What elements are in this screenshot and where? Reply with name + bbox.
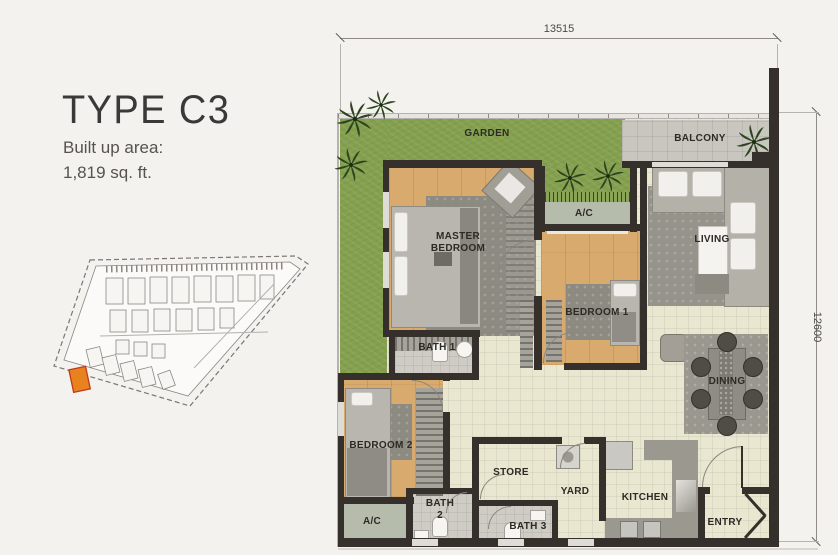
room-label-bath2: BATH 2	[422, 498, 458, 522]
room-label-balcony: BALCONY	[674, 133, 726, 145]
top-dimension-line	[340, 38, 778, 39]
master-pillow-1	[394, 212, 408, 252]
wall-bedroom2-right-stub	[443, 373, 450, 381]
wall-yard-kitchen	[599, 437, 606, 521]
built-up-area: Built up area: 1,819 sq. ft.	[63, 136, 163, 185]
wall-balcony-pier	[752, 152, 770, 166]
page-title: TYPE C3	[62, 88, 230, 133]
room-label-store: STORE	[493, 467, 529, 479]
bath3-basin	[530, 510, 546, 521]
window-bedroom2	[338, 402, 344, 436]
wall-living-left	[640, 162, 647, 370]
dim-extension	[777, 44, 778, 68]
master-throw	[460, 208, 478, 324]
sofa-cushion	[730, 238, 756, 270]
window-master-2	[383, 252, 389, 288]
wall-bedroom2-top	[338, 373, 479, 380]
window-bottom-1	[412, 539, 438, 546]
window-master-1	[383, 192, 389, 228]
room-label-garden: GARDEN	[464, 128, 509, 140]
room-label-bedroom1: BEDROOM 1	[565, 307, 628, 319]
wall-right-exterior	[769, 68, 779, 547]
wall-entry-top-a	[702, 487, 710, 494]
wall-master-top	[383, 160, 538, 168]
room-label-bath1: BATH 1	[418, 342, 455, 354]
wall-store-top	[472, 437, 562, 444]
kitchen-appliance	[676, 480, 696, 512]
kitchen-fridge	[605, 441, 633, 470]
wall-ac-right	[630, 166, 637, 232]
window-bottom-2	[498, 539, 524, 546]
wall-store-bath3	[478, 500, 558, 506]
wall-master-bottom	[383, 330, 480, 337]
palm-tree-icon	[552, 160, 588, 196]
dining-chair	[743, 389, 763, 409]
room-label-bedroom2: BEDROOM 2	[349, 440, 412, 452]
wall-bedroom2-right	[443, 412, 450, 492]
dining-chair	[691, 357, 711, 377]
floorplan-page: TYPE C3 Built up area: 1,819 sq. ft.	[0, 0, 838, 555]
dining-chair	[717, 416, 737, 436]
wall-bottom-exterior	[338, 538, 779, 547]
palm-tree-icon	[590, 158, 626, 194]
room-label-kitchen: KITCHEN	[622, 492, 669, 504]
room-label-bath3: BATH 3	[509, 521, 546, 533]
wall-bath1-left	[389, 330, 395, 378]
window-bottom-3	[568, 539, 594, 546]
dim-extension	[779, 541, 819, 542]
bedroom2-blanket	[347, 448, 387, 496]
room-label-ac-lower: A/C	[363, 516, 381, 528]
wall-ac-lower-top	[338, 497, 414, 504]
area-label: Built up area:	[63, 136, 163, 161]
master-pillow-2	[394, 256, 408, 296]
palm-tree-icon	[364, 88, 398, 122]
door-leaf-living-entry	[741, 446, 743, 488]
area-value: 1,819 sq. ft.	[63, 161, 163, 186]
wall-entry-left	[698, 487, 705, 547]
dining-chair	[743, 357, 763, 377]
wall-master-right-lower	[534, 296, 542, 370]
wall-ac-left	[538, 166, 545, 232]
kitchen-counter-top	[644, 440, 698, 460]
sofa-cushion	[730, 202, 756, 234]
kitchen-sink-2	[643, 521, 661, 538]
right-dimension-value: 12600	[811, 312, 823, 343]
palm-tree-icon	[332, 146, 370, 184]
wall-left-lower-exterior	[338, 373, 344, 547]
room-label-dining: DINING	[709, 376, 746, 388]
living-table-base	[695, 274, 729, 294]
garden-fence-top	[338, 113, 771, 119]
site-key-plan	[44, 248, 318, 412]
living-sofa-right	[724, 167, 770, 307]
wall-bath3-right	[552, 500, 558, 547]
bedroom1-pillow	[613, 283, 637, 297]
wall-bedroom1-bottom	[564, 363, 647, 370]
top-dimension-value: 13515	[544, 23, 575, 35]
dining-chair	[691, 389, 711, 409]
dining-chair	[717, 332, 737, 352]
sofa-cushion	[692, 171, 722, 197]
highlighted-unit	[69, 366, 90, 392]
wall-bedroom1-top	[541, 224, 641, 231]
bedroom2-pillow	[351, 392, 373, 406]
room-label-living: LIVING	[694, 234, 729, 246]
sliding-door-balcony	[652, 162, 728, 167]
room-label-ac-upper: A/C	[575, 208, 593, 220]
dim-extension	[779, 112, 819, 113]
wall-store-left	[472, 437, 479, 547]
bath1-basin	[456, 341, 473, 358]
hall-wardrobe-1	[520, 300, 533, 368]
room-label-master-bedroom: MASTER BEDROOM	[424, 231, 492, 255]
room-label-entry: ENTRY	[707, 517, 742, 529]
wall-master-left	[383, 160, 389, 337]
wall-bath1-right	[472, 337, 479, 378]
kitchen-sink-1	[620, 521, 638, 538]
plot-boundary-bottom	[338, 548, 818, 550]
sofa-cushion	[658, 171, 688, 197]
room-label-yard: YARD	[561, 486, 590, 498]
